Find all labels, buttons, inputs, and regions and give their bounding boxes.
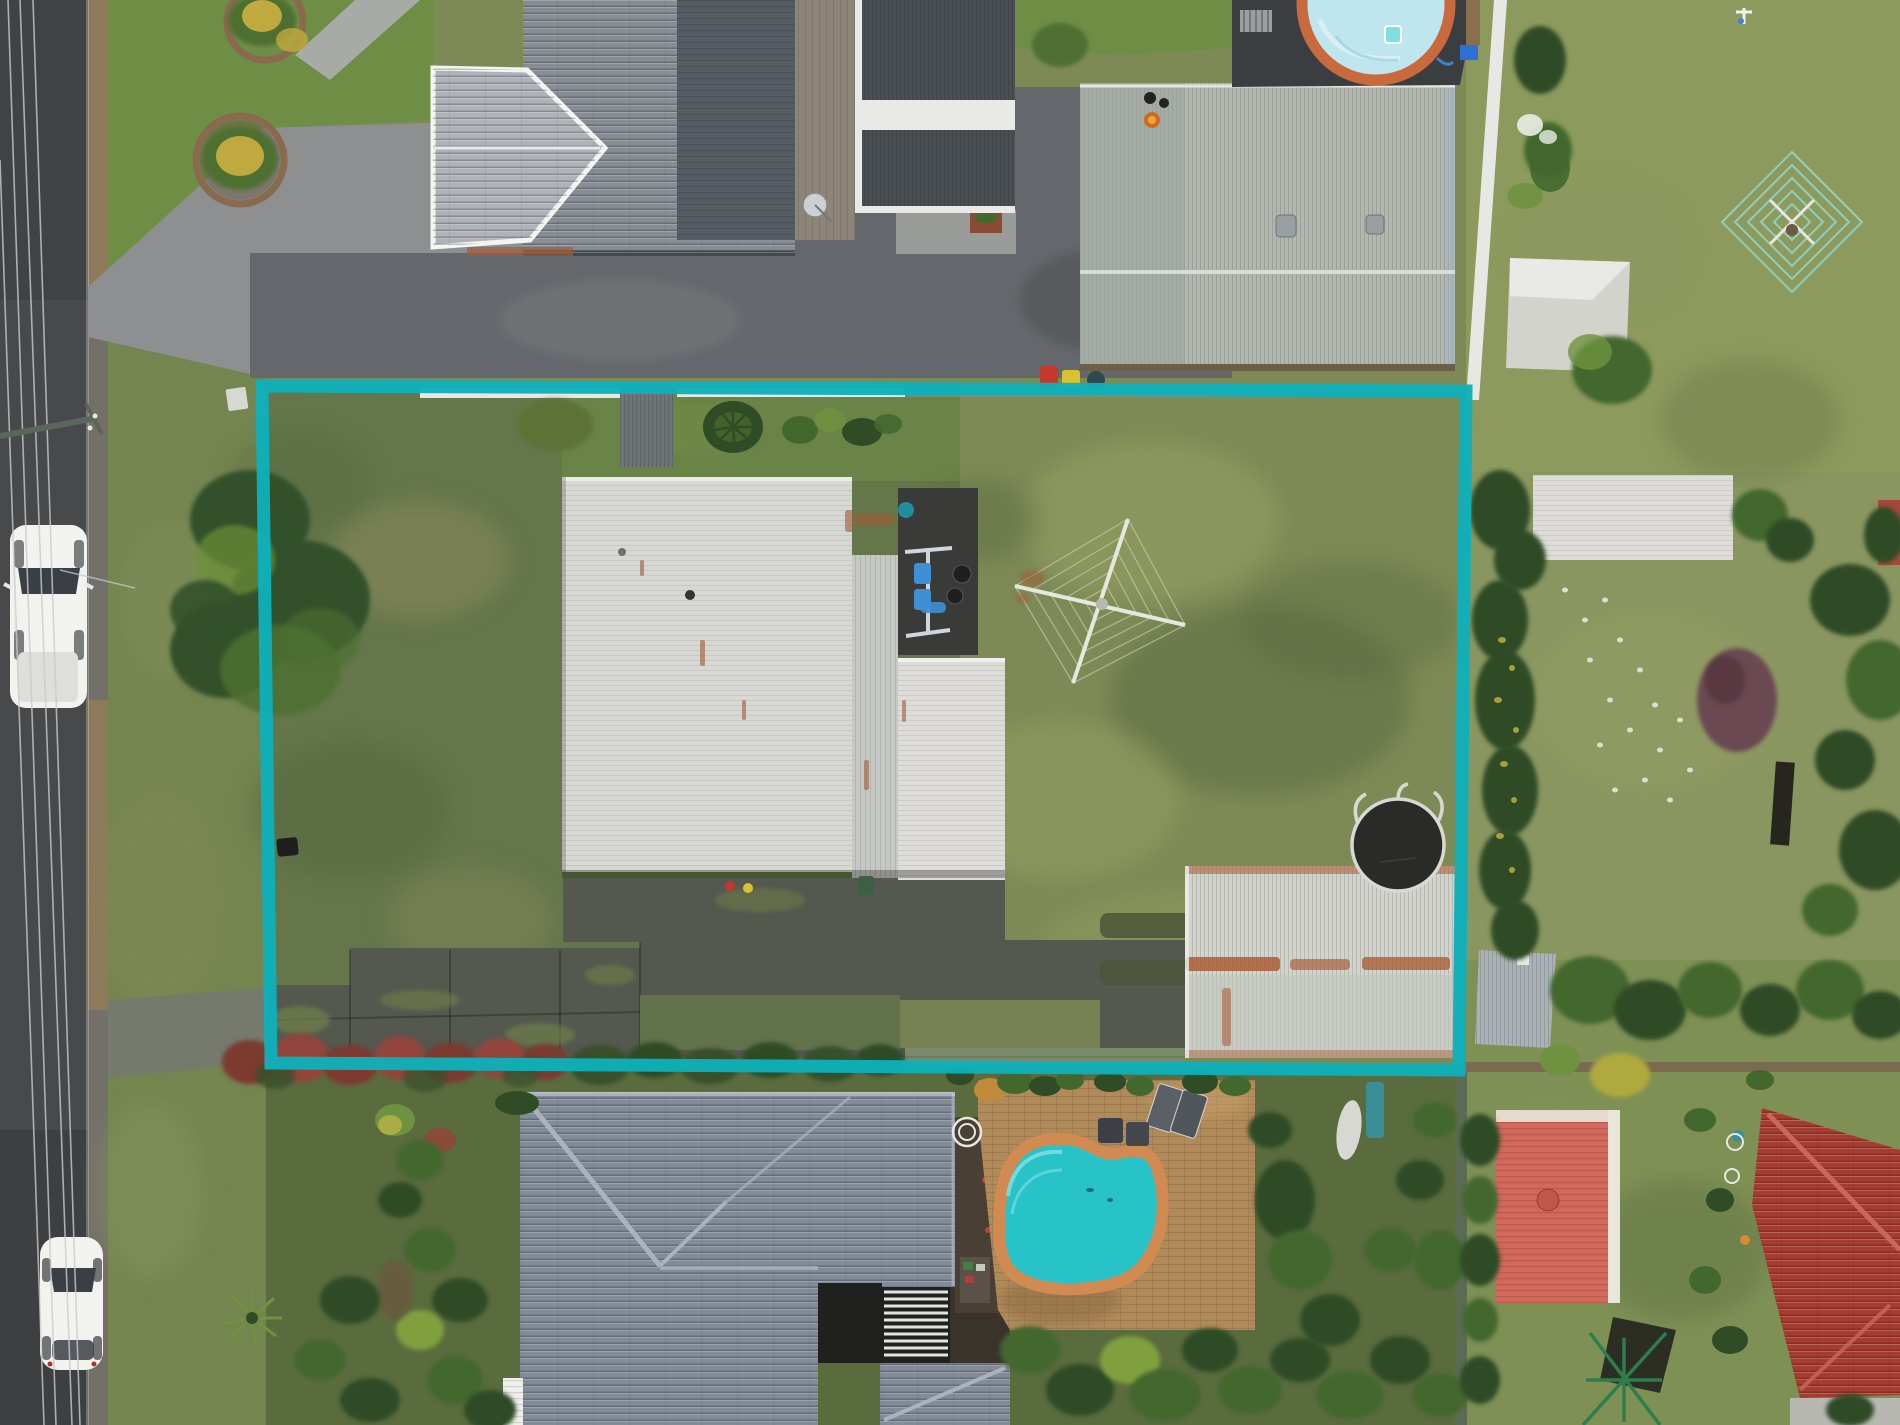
veg-blob bbox=[1396, 1160, 1444, 1200]
gutter-line bbox=[86, 0, 89, 1425]
veg-blob bbox=[1494, 697, 1502, 703]
veg-blob bbox=[1498, 637, 1506, 643]
confetti-blob bbox=[1687, 768, 1693, 773]
above-ground-pool-area bbox=[1232, 0, 1480, 87]
veg-blob bbox=[1740, 984, 1800, 1036]
veg-blob bbox=[1614, 980, 1686, 1040]
bbq-kettle bbox=[947, 588, 963, 604]
veg-blob bbox=[1678, 962, 1742, 1018]
mottle-blob bbox=[100, 790, 220, 1010]
veg-blob bbox=[1706, 1188, 1734, 1212]
confetti-blob bbox=[1607, 698, 1613, 703]
inground-pool-area bbox=[953, 1080, 1255, 1330]
veg-blob bbox=[1802, 884, 1858, 936]
mottle-blob bbox=[1240, 560, 1460, 680]
veg-blob bbox=[517, 399, 593, 451]
confetti-blob bbox=[1597, 743, 1603, 748]
veg-blob bbox=[1815, 730, 1875, 790]
veg-blob bbox=[1500, 761, 1508, 767]
veg-blob bbox=[1046, 1364, 1114, 1416]
garage-roof bbox=[855, 0, 1015, 213]
confetti-blob bbox=[1587, 658, 1593, 663]
solar-mat bbox=[1460, 45, 1478, 60]
red-shed bbox=[1496, 1110, 1620, 1303]
veg-blob bbox=[1684, 1108, 1716, 1132]
veg-blob bbox=[1032, 23, 1088, 67]
veg-blob bbox=[1462, 1176, 1498, 1224]
curb bbox=[88, 700, 108, 1010]
veg-blob bbox=[1370, 1336, 1430, 1384]
veg-blob bbox=[1248, 1112, 1292, 1148]
veg-blob bbox=[1460, 1114, 1500, 1166]
fence-line bbox=[1460, 1062, 1900, 1072]
eave bbox=[1080, 364, 1455, 371]
veg-blob bbox=[294, 1340, 346, 1380]
roof-white-band bbox=[855, 100, 1015, 130]
veg-blob bbox=[1364, 1228, 1416, 1272]
veg-blob bbox=[170, 580, 240, 640]
green-bin bbox=[858, 876, 874, 895]
veg-blob bbox=[396, 1140, 444, 1180]
veg-blob bbox=[1530, 144, 1570, 192]
veg-blob bbox=[1568, 334, 1612, 370]
confetti-blob bbox=[1612, 788, 1618, 793]
veg-blob bbox=[378, 1182, 422, 1218]
confetti-blob bbox=[1657, 748, 1663, 753]
veg-blob bbox=[340, 1378, 400, 1422]
veg-blob bbox=[1413, 1102, 1457, 1138]
veg-blob bbox=[1810, 564, 1890, 636]
letterbox bbox=[276, 837, 299, 857]
veg-blob bbox=[280, 608, 360, 672]
veg-blob bbox=[378, 1115, 402, 1135]
veg-blob bbox=[377, 1260, 413, 1320]
veg-blob bbox=[1094, 1072, 1126, 1092]
veg-blob bbox=[1479, 830, 1531, 910]
veg-blob bbox=[874, 414, 902, 434]
veg-blob bbox=[1590, 1053, 1650, 1097]
veg-blob bbox=[495, 1091, 539, 1115]
windshield bbox=[50, 1268, 96, 1292]
veg-blob bbox=[1300, 1294, 1360, 1346]
veg-blob bbox=[216, 136, 264, 176]
veg-blob bbox=[1000, 1326, 1060, 1374]
bottom-house-roof bbox=[503, 1092, 1010, 1425]
teal-bench bbox=[1366, 1082, 1384, 1138]
veg-blob bbox=[320, 1276, 380, 1324]
veg-blob bbox=[1182, 1328, 1238, 1372]
curb bbox=[88, 330, 108, 700]
mottle-blob bbox=[1660, 360, 1840, 480]
confetti-blob bbox=[1652, 703, 1658, 708]
veg-blob bbox=[1705, 656, 1745, 704]
confetti-blob bbox=[1667, 798, 1673, 803]
veg-blob bbox=[814, 408, 846, 432]
eave-shadow bbox=[562, 870, 1005, 878]
mottle-blob bbox=[250, 740, 450, 880]
veg-blob bbox=[1218, 1366, 1282, 1414]
woven-fence bbox=[1466, 0, 1480, 45]
pot bbox=[1144, 92, 1156, 104]
barn-roof bbox=[1080, 83, 1455, 371]
bucket bbox=[898, 502, 914, 518]
veg-blob bbox=[404, 1228, 456, 1272]
veg-blob bbox=[1496, 833, 1504, 839]
lawn-between-strips bbox=[640, 995, 900, 1050]
veg-blob bbox=[1219, 1076, 1251, 1096]
veg-blob bbox=[1513, 727, 1519, 733]
confetti-blob bbox=[1602, 598, 1608, 603]
veg-blob bbox=[1129, 1369, 1201, 1421]
confetti-blob bbox=[1627, 728, 1633, 733]
confetti-blob bbox=[1617, 638, 1623, 643]
veg-blob bbox=[1509, 867, 1515, 873]
veg-blob bbox=[1126, 1076, 1154, 1096]
veg-blob bbox=[1746, 1070, 1774, 1090]
veg-blob bbox=[432, 1278, 488, 1322]
veg-blob bbox=[1472, 580, 1528, 660]
confetti-blob bbox=[1677, 718, 1683, 723]
veg-blob bbox=[1460, 1356, 1500, 1404]
veg-blob bbox=[276, 28, 308, 52]
garden-edge-strip bbox=[467, 247, 573, 256]
parked-hatchback bbox=[40, 1237, 103, 1370]
veg-blob bbox=[1507, 183, 1543, 209]
mottle-blob bbox=[95, 1100, 205, 1280]
roof-vent bbox=[1276, 215, 1296, 237]
veg-blob bbox=[1268, 1230, 1332, 1290]
rear-window bbox=[52, 1340, 94, 1360]
veg-blob bbox=[1412, 1373, 1468, 1417]
confetti-blob bbox=[1642, 778, 1648, 783]
pot bbox=[1159, 98, 1169, 108]
ute-tray bbox=[18, 652, 78, 702]
veg-blob bbox=[1514, 26, 1566, 94]
veg-blob bbox=[1414, 1230, 1466, 1290]
roof-vent bbox=[685, 590, 695, 600]
wheel-track bbox=[1100, 960, 1193, 985]
aerial-photo bbox=[0, 0, 1900, 1425]
veg-blob bbox=[1462, 1298, 1498, 1342]
veg-blob bbox=[1509, 665, 1515, 671]
veg-blob bbox=[1491, 900, 1539, 960]
veg-blob bbox=[1255, 1160, 1315, 1240]
roof-vent bbox=[1366, 215, 1384, 234]
backyard-shed bbox=[1185, 866, 1455, 1058]
confetti-blob bbox=[1562, 588, 1568, 593]
veg-blob bbox=[1460, 1234, 1500, 1286]
confetti-blob bbox=[1637, 668, 1643, 673]
veg-blob bbox=[1689, 1266, 1721, 1294]
confetti-blob bbox=[1582, 618, 1588, 623]
bbq-kettle bbox=[953, 565, 971, 583]
veg-blob bbox=[1766, 518, 1814, 562]
veg-blob bbox=[782, 416, 818, 444]
garden-pot bbox=[1740, 1235, 1750, 1245]
mottle-blob bbox=[1020, 440, 1280, 600]
courtyard bbox=[818, 1283, 882, 1363]
pool-toy bbox=[1385, 26, 1401, 43]
veg-blob bbox=[1712, 1326, 1748, 1354]
veg-blob bbox=[1482, 745, 1538, 835]
veg-blob bbox=[1517, 114, 1543, 136]
veg-blob bbox=[1826, 1394, 1874, 1425]
veg-blob bbox=[1511, 797, 1517, 803]
concrete-slab bbox=[226, 387, 249, 412]
veg-blob bbox=[1475, 650, 1535, 750]
aerial-photo-stage bbox=[0, 0, 1900, 1425]
veg-blob bbox=[1540, 1044, 1580, 1076]
veg-blob bbox=[1316, 1371, 1384, 1419]
veg-blob bbox=[242, 0, 282, 32]
veg-blob bbox=[1539, 130, 1557, 144]
rear-patio bbox=[898, 488, 978, 655]
lawn-between-strips bbox=[900, 1000, 1100, 1048]
